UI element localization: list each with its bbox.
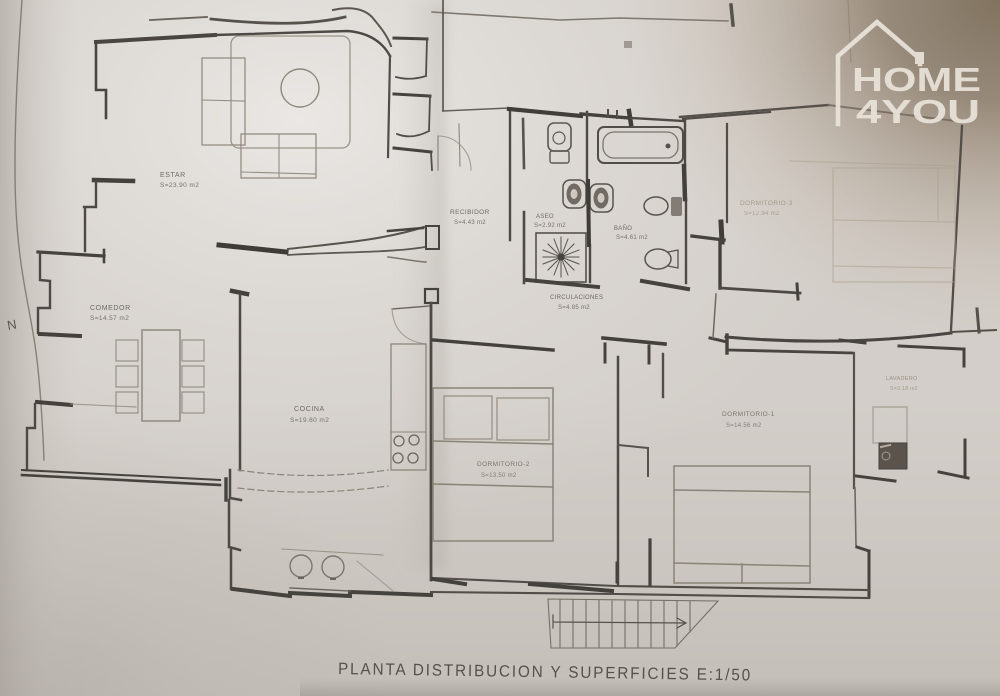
svg-text:ESTAR: ESTAR (160, 172, 186, 179)
svg-text:S=12.94 m2: S=12.94 m2 (744, 211, 780, 217)
svg-text:S=2.92 m2: S=2.92 m2 (534, 223, 566, 229)
svg-text:LAVADERO: LAVADERO (886, 376, 918, 382)
svg-text:S=13.50 m2: S=13.50 m2 (481, 473, 517, 479)
svg-text:DORMITORIO-1: DORMITORIO-1 (722, 411, 775, 418)
svg-text:COCINA: COCINA (294, 406, 325, 413)
svg-text:S=14.57 m2: S=14.57 m2 (90, 315, 129, 322)
svg-text:S=4.61 m2: S=4.61 m2 (616, 235, 648, 241)
svg-text:S=23.90 m2: S=23.90 m2 (160, 182, 199, 189)
svg-text:S=14.56 m2: S=14.56 m2 (726, 423, 762, 429)
svg-text:DORMITORIO-3: DORMITORIO-3 (740, 200, 793, 207)
svg-text:4YOU: 4YOU (856, 93, 980, 130)
svg-text:S=19.60 m2: S=19.60 m2 (290, 417, 329, 424)
svg-text:S=4.85 m2: S=4.85 m2 (558, 305, 590, 311)
svg-text:BAÑO: BAÑO (614, 225, 632, 232)
svg-text:S=4.43 m2: S=4.43 m2 (454, 220, 486, 226)
svg-text:DORMITORIO-2: DORMITORIO-2 (477, 461, 530, 468)
svg-text:S=3.18 m2: S=3.18 m2 (890, 386, 918, 392)
svg-text:COMEDOR: COMEDOR (90, 305, 131, 312)
svg-text:CIRCULACIONES: CIRCULACIONES (550, 295, 603, 301)
svg-text:ASEO: ASEO (536, 214, 554, 220)
svg-text:RECIBIDOR: RECIBIDOR (450, 209, 490, 216)
